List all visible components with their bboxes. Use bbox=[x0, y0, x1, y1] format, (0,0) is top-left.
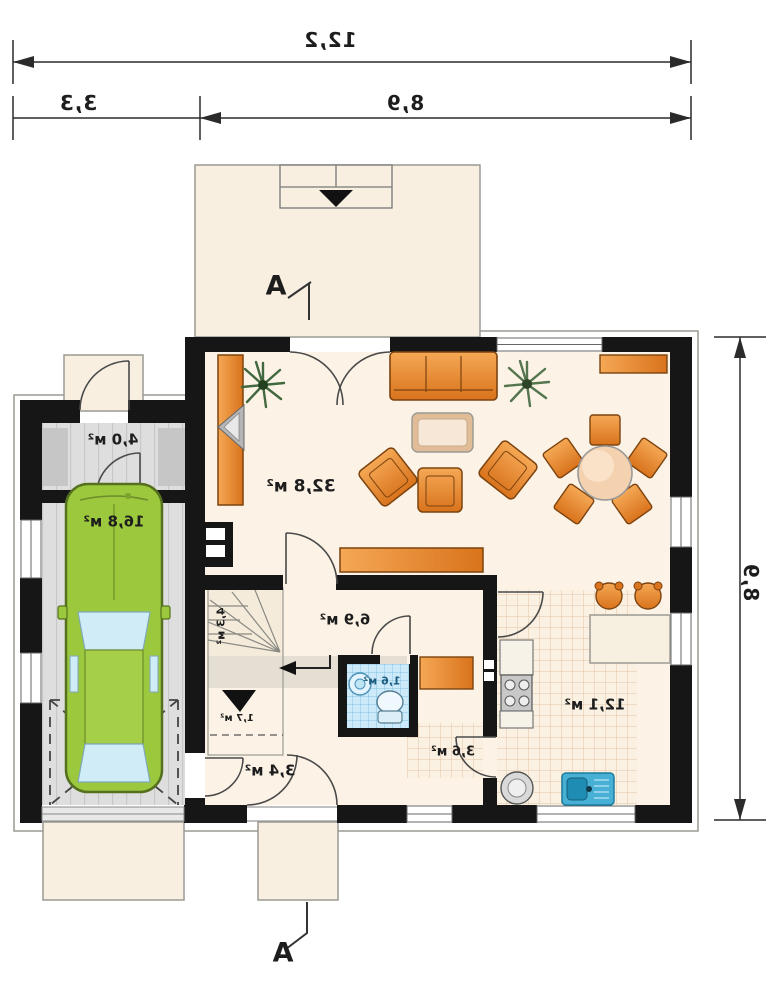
entry-stoop bbox=[258, 822, 338, 900]
window-left-1 bbox=[21, 520, 41, 578]
window-right-1 bbox=[671, 497, 691, 547]
room-label-under-stairs: 1,7 м² bbox=[220, 714, 254, 724]
wardrobe bbox=[420, 657, 473, 689]
car-rear-window bbox=[78, 744, 150, 782]
section-letter-top: A bbox=[266, 273, 287, 300]
car-roof bbox=[85, 650, 143, 744]
dim-label-right-width: 8,9 bbox=[386, 93, 424, 113]
window-bottom-2 bbox=[537, 806, 635, 822]
window-left-2 bbox=[21, 653, 41, 703]
dim-label-total-width: 12,2 bbox=[303, 30, 356, 50]
room-label-storage: 4,0 м² bbox=[88, 433, 139, 448]
dim-label-left-width: 3,3 bbox=[59, 93, 97, 113]
bar-stool-1 bbox=[595, 582, 623, 609]
bar-counter bbox=[590, 615, 670, 663]
room-label-entry: 3,4 м² bbox=[245, 764, 296, 779]
car-windshield bbox=[78, 612, 150, 650]
room-label-kitchen: 12,1 м² bbox=[564, 698, 625, 713]
armchair-2 bbox=[418, 468, 462, 512]
dim-label-height: 8,9 bbox=[741, 563, 761, 601]
sofa bbox=[390, 352, 497, 400]
window-bottom-1 bbox=[407, 806, 452, 822]
kitchen-cabinet-lower bbox=[500, 711, 533, 728]
storage-shelf-right bbox=[158, 428, 185, 486]
car-mirror-left bbox=[58, 606, 67, 619]
bar-stool-2 bbox=[634, 582, 662, 609]
toilet bbox=[377, 691, 403, 723]
window-top bbox=[497, 338, 602, 351]
coffee-table bbox=[412, 413, 473, 452]
room-label-hall: 6,9 м² bbox=[320, 613, 371, 628]
dining-chair bbox=[590, 415, 620, 445]
entry-threshold bbox=[247, 807, 337, 821]
wall-shelf bbox=[600, 355, 667, 373]
room-label-corridor: 3,6 м² bbox=[431, 746, 475, 759]
driveway-apron bbox=[43, 822, 184, 900]
room-label-wc: 1,6 м² bbox=[363, 676, 400, 687]
storage-shelf-left bbox=[42, 428, 68, 486]
floor-plan-drawing bbox=[0, 0, 777, 1000]
kitchen-cabinet-upper bbox=[500, 640, 533, 675]
fireplace-unit bbox=[218, 355, 244, 505]
room-label-living: 32,8 м² bbox=[266, 479, 335, 496]
top-porch bbox=[195, 165, 480, 337]
sideboard bbox=[340, 548, 483, 572]
section-letter-bottom: A bbox=[273, 940, 294, 967]
kitchen-sink bbox=[562, 773, 614, 805]
water-heater bbox=[501, 772, 533, 804]
floor-plan-canvas: 12,2 3,3 8,9 8,9 A A 4,0 м² 16,8 м² 32,8… bbox=[0, 0, 777, 1000]
room-label-stairs: 4,3 м² bbox=[216, 607, 227, 644]
room-label-garage: 16,8 м² bbox=[83, 515, 144, 530]
car-mirror-right bbox=[161, 606, 170, 619]
stove bbox=[501, 675, 532, 711]
window-right-2 bbox=[671, 613, 691, 665]
